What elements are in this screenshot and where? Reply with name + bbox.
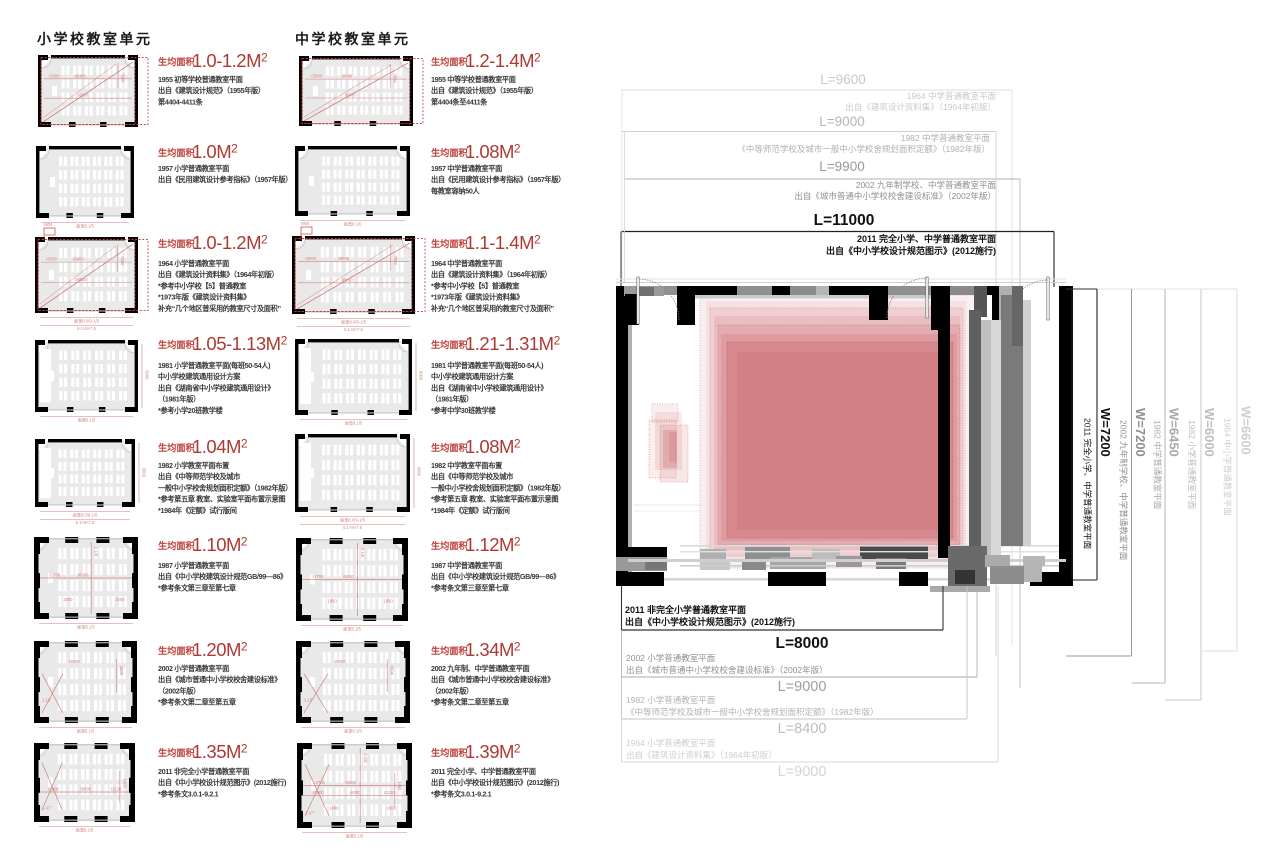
svg-text:ℓ9000: ℓ9000 xyxy=(73,257,84,262)
svg-text:出自《民用建筑设计参考指标》（1957年版）: 出自《民用建筑设计参考指标》（1957年版） xyxy=(158,175,292,184)
svg-text:1.0-1.2M2: 1.0-1.2M2 xyxy=(192,232,268,253)
svg-text:生均面积: 生均面积 xyxy=(158,540,196,551)
svg-text:生均面积: 生均面积 xyxy=(431,442,469,453)
svg-text:W=6600: W=6600 xyxy=(1239,406,1254,455)
svg-text:出自《中小学校建筑设计规范GB/99—86》: 出自《中小学校建筑设计规范GB/99—86》 xyxy=(431,572,560,581)
svg-text:生均面积: 生均面积 xyxy=(158,147,196,158)
svg-text:1600: 1600 xyxy=(115,597,125,602)
svg-text:出自《中小学校建筑设计规范GB/99—86》: 出自《中小学校建筑设计规范GB/99—86》 xyxy=(158,572,287,581)
svg-text:1.10M2: 1.10M2 xyxy=(192,534,248,555)
svg-text:出自《建筑设计资料集》（1964年初版）: 出自《建筑设计资料集》（1964年初版） xyxy=(158,270,278,279)
svg-text:面宽8.1/5: 面宽8.1/5 xyxy=(78,416,96,423)
svg-text:2002 九年制学校、中学普通教室平面: 2002 九年制学校、中学普通教室平面 xyxy=(856,180,997,190)
svg-text:1.21-1.31M2: 1.21-1.31M2 xyxy=(465,333,561,354)
svg-text:2011 非完全小学普通教室平面: 2011 非完全小学普通教室平面 xyxy=(158,767,249,776)
svg-text:面宽8.1/5: 面宽8.1/5 xyxy=(76,826,94,833)
svg-text:出自《建筑设计资料集》（1964年初版）: 出自《建筑设计资料集》（1964年初版） xyxy=(845,102,996,112)
svg-text:6000: 6000 xyxy=(419,371,424,381)
svg-text:出自《中小学校设计规范图示》(2012施行): 出自《中小学校设计规范图示》(2012施行) xyxy=(625,616,795,627)
svg-text:1400: 1400 xyxy=(122,779,127,789)
svg-text:出自《民用建筑设计参考指标》（1957年版）: 出自《民用建筑设计参考指标》（1957年版） xyxy=(431,175,565,184)
svg-text:ℓ8000: ℓ8000 xyxy=(342,277,353,282)
svg-text:中小学校建筑通用设计方案: 中小学校建筑通用设计方案 xyxy=(431,372,514,381)
svg-text:ℓ6000: ℓ6000 xyxy=(78,573,89,578)
svg-text:1800: 1800 xyxy=(329,805,339,810)
svg-text:ℓ5000: ℓ5000 xyxy=(335,659,346,664)
svg-text:生均面积: 生均面积 xyxy=(158,442,196,453)
svg-text:*参考第五章 教室、实验室平面布置示意图: *参考第五章 教室、实验室平面布置示意图 xyxy=(431,495,558,504)
svg-text:出自《湖南省中小学校建筑通用设计》: 出自《湖南省中小学校建筑通用设计》 xyxy=(431,383,547,392)
svg-text:生均面积: 生均面积 xyxy=(431,56,469,67)
svg-text:W=7200: W=7200 xyxy=(1098,408,1113,457)
svg-text:L=11000: L=11000 xyxy=(814,212,875,229)
svg-text:1.04M2: 1.04M2 xyxy=(192,436,248,457)
svg-text:小学校教室单元: 小学校教室单元 xyxy=(37,31,153,47)
svg-text:L=9000: L=9000 xyxy=(819,114,864,129)
svg-text:1600: 1600 xyxy=(383,599,393,604)
svg-text:中学校教室单元: 中学校教室单元 xyxy=(295,31,411,47)
svg-text:*参考中学30班教学楼: *参考中学30班教学楼 xyxy=(431,406,497,415)
svg-text:（2002年版）: （2002年版） xyxy=(158,686,200,695)
svg-text:生均面积: 生均面积 xyxy=(158,56,196,67)
svg-text:ℓ2000: ℓ2000 xyxy=(48,787,59,792)
svg-text:*1973年版《建筑设计资料集》: *1973年版《建筑设计资料集》 xyxy=(158,293,250,302)
svg-text:6000: 6000 xyxy=(145,370,150,380)
svg-text:5.1×8×7.5: 5.1×8×7.5 xyxy=(344,327,364,332)
svg-text:生均面积: 生均面积 xyxy=(158,645,196,656)
svg-text:*参考条文第二章至第五章: *参考条文第二章至第五章 xyxy=(158,698,236,707)
svg-text:1964 中小学普通教室平面: 1964 中小学普通教室平面 xyxy=(1223,418,1233,516)
svg-text:ℓ8000: ℓ8000 xyxy=(76,277,87,282)
svg-text:生均面积: 生均面积 xyxy=(158,339,196,350)
svg-text:1964 中学普通教室平面: 1964 中学普通教室平面 xyxy=(907,91,997,101)
svg-text:2011 完全小学、中学普通教室平面: 2011 完全小学、中学普通教室平面 xyxy=(857,233,996,244)
svg-text:1.47°: 1.47° xyxy=(305,810,315,815)
svg-text:出自《中等师范学校及城市: 出自《中等师范学校及城市 xyxy=(158,472,240,481)
svg-text:2011 完全小学、中学普通教室平面: 2011 完全小学、中学普通教室平面 xyxy=(431,767,536,776)
svg-text:ℓ6000: ℓ6000 xyxy=(343,574,354,579)
svg-text:1.47°: 1.47° xyxy=(42,805,52,810)
svg-text:ℓ1130: ℓ1130 xyxy=(111,787,122,792)
svg-text:生均面积: 生均面积 xyxy=(158,238,196,249)
svg-text:一般中小学校舍规划面积定额》（1982年版）: 一般中小学校舍规划面积定额》（1982年版） xyxy=(431,483,565,492)
svg-text:L=8400: L=8400 xyxy=(778,721,827,737)
svg-text:《中等师范学校及城市一般中小学校舍规划面积定额》（1982年: 《中等师范学校及城市一般中小学校舍规划面积定额》（1982年版） xyxy=(626,707,879,717)
svg-text:面宽8.1/5: 面宽8.1/5 xyxy=(344,727,362,734)
svg-text:5.1×8×7.5: 5.1×8×7.5 xyxy=(343,525,363,530)
svg-text:4500: 4500 xyxy=(390,666,395,676)
svg-text:1964 中学普通教室平面: 1964 中学普通教室平面 xyxy=(431,259,502,268)
svg-text:出自《建筑设计规范》（1955年版）: 出自《建筑设计规范》（1955年版） xyxy=(158,86,265,95)
svg-text:1957 小学普通教室平面: 1957 小学普通教室平面 xyxy=(158,164,229,173)
svg-text:2002 小学普通教室平面: 2002 小学普通教室平面 xyxy=(626,653,716,663)
svg-text:面宽8.1/5: 面宽8.1/5 xyxy=(345,419,363,426)
svg-text:1.39M2: 1.39M2 xyxy=(465,741,521,762)
svg-text:*参考中小学校【5】普通教室: *参考中小学校【5】普通教室 xyxy=(431,281,519,290)
svg-text:6000: 6000 xyxy=(417,467,422,477)
svg-text:2.1/8: 2.1/8 xyxy=(363,753,368,763)
svg-text:补充“几个地区普采用的教室尺寸及面积”: 补充“几个地区普采用的教室尺寸及面积” xyxy=(157,304,281,313)
svg-text:6000: 6000 xyxy=(142,468,147,478)
svg-text:ℓ900: ℓ900 xyxy=(44,222,53,227)
svg-text:1955 初等学校普通教室平面: 1955 初等学校普通教室平面 xyxy=(158,75,243,84)
svg-text:1600: 1600 xyxy=(387,805,397,810)
svg-text:《中等师范学校及城市一般中小学校舍规划面积定额》（1982年: 《中等师范学校及城市一般中小学校舍规划面积定额》（1982年版） xyxy=(737,144,990,154)
svg-text:L=9900: L=9900 xyxy=(819,159,864,174)
svg-text:ℓ2700: ℓ2700 xyxy=(50,573,61,578)
svg-text:面宽8.1/5: 面宽8.1/5 xyxy=(344,220,362,227)
svg-text:*1984年《定额》试行版间: *1984年《定额》试行版间 xyxy=(431,506,510,515)
svg-text:2011 完全小学、中学普通教室平面: 2011 完全小学、中学普通教室平面 xyxy=(1083,418,1093,550)
svg-text:出自《城市普通中小学校校舍建设标准》（2002年版）: 出自《城市普通中小学校校舍建设标准》（2002年版） xyxy=(626,665,828,675)
svg-text:ℓ6000: ℓ6000 xyxy=(81,787,92,792)
svg-text:7000: 7000 xyxy=(121,73,126,83)
svg-text:W=7200: W=7200 xyxy=(1133,408,1148,457)
svg-text:1982 小学教室平面布置: 1982 小学教室平面布置 xyxy=(158,461,229,470)
svg-text:1.08M2: 1.08M2 xyxy=(465,436,521,457)
svg-text:7000: 7000 xyxy=(393,74,398,84)
svg-text:1.0M2: 1.0M2 xyxy=(192,141,238,162)
svg-text:1.16°: 1.16° xyxy=(42,698,52,703)
svg-text:L=8000: L=8000 xyxy=(775,635,828,652)
svg-text:生均面积: 生均面积 xyxy=(158,747,196,758)
svg-text:1.35M2: 1.35M2 xyxy=(192,741,248,762)
svg-text:ℓ5000: ℓ5000 xyxy=(69,659,80,664)
svg-text:出自《中等师范学校及城市: 出自《中等师范学校及城市 xyxy=(431,472,513,481)
svg-text:出自《中小学校设计规范图示》(2012施行): 出自《中小学校设计规范图示》(2012施行) xyxy=(431,778,560,787)
svg-text:L=9600: L=9600 xyxy=(820,72,865,87)
svg-text:1.1-1.4M2: 1.1-1.4M2 xyxy=(465,232,541,253)
svg-text:*参考条文3.0.1-9.2.1: *参考条文3.0.1-9.2.1 xyxy=(158,789,219,798)
svg-text:面宽8.0/9-1/5: 面宽8.0/9-1/5 xyxy=(340,516,366,523)
svg-text:*1973年版《建筑设计资料集》: *1973年版《建筑设计资料集》 xyxy=(431,293,523,302)
svg-text:ℓ8000: ℓ8000 xyxy=(78,93,89,98)
svg-text:W=6000: W=6000 xyxy=(1202,408,1217,457)
svg-text:1987 中学普通教室平面: 1987 中学普通教室平面 xyxy=(431,561,502,570)
svg-text:*参考条文第三章至第七章: *参考条文第三章至第七章 xyxy=(158,583,236,592)
svg-text:出自《中小学校设计规范图示》(2012施行): 出自《中小学校设计规范图示》(2012施行) xyxy=(826,245,996,256)
svg-text:2011 非完全小学普通教室平面: 2011 非完全小学普通教室平面 xyxy=(625,604,746,615)
svg-text:ℓ9000: ℓ9000 xyxy=(75,73,86,78)
svg-text:1981 小学普通教室平面(每班50-54人): 1981 小学普通教室平面(每班50-54人) xyxy=(158,361,271,370)
svg-text:出自《城市普通中小学校校舍建设标准》: 出自《城市普通中小学校校舍建设标准》 xyxy=(431,675,554,684)
svg-text:面宽8.1/5: 面宽8.1/5 xyxy=(346,832,364,839)
svg-text:（1981年版）: （1981年版） xyxy=(431,395,473,404)
svg-text:第4404条至4411条: 第4404条至4411条 xyxy=(431,97,488,106)
svg-text:ℓ2000: ℓ2000 xyxy=(306,256,317,261)
svg-text:1.12M2: 1.12M2 xyxy=(465,534,521,555)
svg-text:面宽8.0/9-1/5: 面宽8.0/9-1/5 xyxy=(74,317,100,324)
svg-text:L=9000: L=9000 xyxy=(778,679,827,695)
svg-text:2002 小学普通教室平面: 2002 小学普通教室平面 xyxy=(158,664,229,673)
svg-text:中小学校建筑通用设计方案: 中小学校建筑通用设计方案 xyxy=(158,372,241,381)
svg-text:*参考中小学校【5】普通教室: *参考中小学校【5】普通教室 xyxy=(158,281,246,290)
svg-text:出自《中小学校设计规范图示》(2012施行): 出自《中小学校设计规范图示》(2012施行) xyxy=(158,778,287,787)
svg-text:*参考条文第三章至第七章: *参考条文第三章至第七章 xyxy=(431,583,509,592)
svg-text:1955 中等学校普通教室平面: 1955 中等学校普通教室平面 xyxy=(431,75,516,84)
svg-text:1982 小学普通教室平面: 1982 小学普通教室平面 xyxy=(626,695,716,705)
svg-text:1957 中学普通教室平面: 1957 中学普通教室平面 xyxy=(431,164,502,173)
svg-text:一般中小学校舍规划面积定额》（1982年版）: 一般中小学校舍规划面积定额》（1982年版） xyxy=(158,483,292,492)
svg-text:*参考第五章 教室、实验室平面布置示意图: *参考第五章 教室、实验室平面布置示意图 xyxy=(158,495,285,504)
svg-text:面宽8.1/5: 面宽8.1/5 xyxy=(77,727,95,734)
svg-text:（1981年版）: （1981年版） xyxy=(158,395,200,404)
svg-text:ℓ900: ℓ900 xyxy=(301,221,310,226)
svg-text:*参考条文3.0.1-9.2.1: *参考条文3.0.1-9.2.1 xyxy=(431,789,492,798)
svg-text:面宽8.1/5: 面宽8.1/5 xyxy=(77,623,95,630)
svg-text:出自《建筑设计资料集》（1964年初版）: 出自《建筑设计资料集》（1964年初版） xyxy=(431,270,551,279)
svg-text:ℓ2000: ℓ2000 xyxy=(313,790,324,795)
svg-text:ℓ9000: ℓ9000 xyxy=(342,74,353,79)
svg-text:*参考条文第二章至第五章: *参考条文第二章至第五章 xyxy=(431,698,509,707)
svg-text:1964 小学普通教室平面: 1964 小学普通教室平面 xyxy=(158,259,229,268)
svg-text:ℓ2700: ℓ2700 xyxy=(313,574,324,579)
svg-text:W=6450: W=6450 xyxy=(1167,408,1182,457)
svg-text:1800: 1800 xyxy=(63,597,73,602)
svg-text:生均面积: 生均面积 xyxy=(431,645,469,656)
svg-text:5.1×8×7.5: 5.1×8×7.5 xyxy=(77,326,97,331)
svg-text:1982 小学普通教室平面: 1982 小学普通教室平面 xyxy=(1187,420,1197,510)
svg-text:ℓ1130: ℓ1130 xyxy=(384,790,395,795)
svg-text:1964 小学普通教室平面: 1964 小学普通教室平面 xyxy=(626,738,716,748)
svg-text:1400: 1400 xyxy=(397,781,402,791)
svg-text:面宽8.0/9-1/5: 面宽8.0/9-1/5 xyxy=(341,318,367,325)
svg-text:面宽8.0/9-1/5: 面宽8.0/9-1/5 xyxy=(73,511,99,518)
svg-text:1982 中学普通教室平面: 1982 中学普通教室平面 xyxy=(1153,420,1163,510)
svg-text:出自《湖南省中小学校建筑通用设计》: 出自《湖南省中小学校建筑通用设计》 xyxy=(158,383,274,392)
svg-text:1.2-1.4M2: 1.2-1.4M2 xyxy=(465,50,541,71)
svg-text:ℓ9000: ℓ9000 xyxy=(338,256,349,261)
svg-text:1.08M2: 1.08M2 xyxy=(465,141,521,162)
svg-text:1.16°: 1.16° xyxy=(304,698,314,703)
svg-text:ℓ2000: ℓ2000 xyxy=(46,257,57,262)
svg-text:面宽8.1/5: 面宽8.1/5 xyxy=(343,625,361,632)
svg-text:1.05-1.13M2: 1.05-1.13M2 xyxy=(192,333,288,354)
svg-text:1.20M2: 1.20M2 xyxy=(192,639,248,660)
svg-text:补充“几个地区普采用的教室尺寸及面积”: 补充“几个地区普采用的教室尺寸及面积” xyxy=(430,304,554,313)
svg-text:7000: 7000 xyxy=(120,256,125,266)
svg-text:2.1/8: 2.1/8 xyxy=(360,548,365,558)
svg-text:1.0-1.2M2: 1.0-1.2M2 xyxy=(192,50,268,71)
svg-text:*参考小学20班教学楼: *参考小学20班教学楼 xyxy=(158,406,224,415)
svg-text:（2002年版）: （2002年版） xyxy=(431,686,473,695)
svg-text:出自《建筑设计资料集》（1964年初版）: 出自《建筑设计资料集》（1964年初版） xyxy=(626,750,777,760)
svg-text:1982 中学普通教室平面: 1982 中学普通教室平面 xyxy=(901,133,991,143)
svg-text:出自《城市普通中小学校校舍建设标准》（2002年版）: 出自《城市普通中小学校校舍建设标准》（2002年版） xyxy=(794,191,996,201)
svg-text:ℓ2000: ℓ2000 xyxy=(49,73,60,78)
svg-text:2.1/8: 2.1/8 xyxy=(94,547,99,557)
svg-text:*1984年《定额》试行版间: *1984年《定额》试行版间 xyxy=(158,506,237,515)
svg-text:1.34M2: 1.34M2 xyxy=(465,639,521,660)
svg-text:出自《城市普通中小学校校舍建设标准》: 出自《城市普通中小学校校舍建设标准》 xyxy=(158,675,281,684)
svg-text:4500: 4500 xyxy=(119,666,124,676)
svg-text:ℓ6000: ℓ6000 xyxy=(350,790,361,795)
svg-text:ℓ8000: ℓ8000 xyxy=(345,93,356,98)
svg-text:生均面积: 生均面积 xyxy=(431,339,469,350)
svg-text:生均面积: 生均面积 xyxy=(431,147,469,158)
svg-text:生均面积: 生均面积 xyxy=(431,540,469,551)
svg-text:1981 中学普通教室平面(每班50-54人): 1981 中学普通教室平面(每班50-54人) xyxy=(431,361,544,370)
svg-text:生均面积: 生均面积 xyxy=(431,238,469,249)
svg-text:2002 九年制学校、中学普通教室平面: 2002 九年制学校、中学普通教室平面 xyxy=(1119,420,1129,561)
svg-text:5.1×8×7.5: 5.1×8×7.5 xyxy=(76,520,96,525)
svg-text:第4404-4411条: 第4404-4411条 xyxy=(158,97,204,106)
svg-text:出自《建筑设计规范》（1955年版）: 出自《建筑设计规范》（1955年版） xyxy=(431,86,538,95)
svg-text:1987 小学普通教室平面: 1987 小学普通教室平面 xyxy=(158,561,229,570)
svg-text:ℓ2000: ℓ2000 xyxy=(312,74,323,79)
svg-text:1800: 1800 xyxy=(327,599,337,604)
svg-text:L=9000: L=9000 xyxy=(778,764,827,780)
svg-text:ℓ2700: ℓ2700 xyxy=(314,780,325,785)
svg-text:生均面积: 生均面积 xyxy=(431,747,469,758)
svg-text:ℓ6000: ℓ6000 xyxy=(345,780,356,785)
svg-text:1982 中学教室平面布置: 1982 中学教室平面布置 xyxy=(431,461,502,470)
svg-text:2002 九年制、中学普通教室平面: 2002 九年制、中学普通教室平面 xyxy=(431,664,529,673)
svg-text:7000: 7000 xyxy=(393,256,398,266)
svg-text:每教室容纳50人: 每教室容纳50人 xyxy=(431,186,480,195)
svg-text:面宽8.1/5: 面宽8.1/5 xyxy=(76,222,94,229)
